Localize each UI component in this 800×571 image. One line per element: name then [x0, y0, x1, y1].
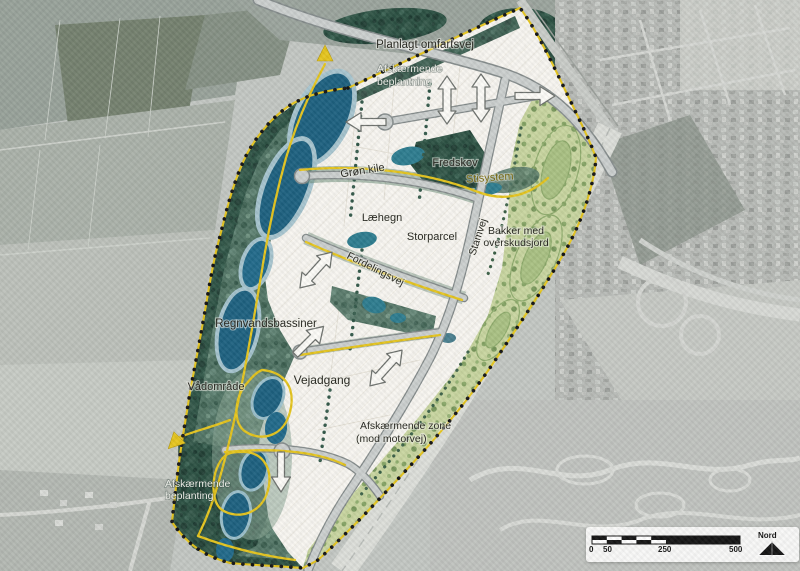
scale-tick-250: 250	[658, 545, 671, 555]
label-afskaermende-zone-line2: (mod motorvej)	[356, 433, 427, 445]
north-label: Nord	[758, 531, 777, 540]
site-plan-map: Planlagt omfartsvej Afskærmende beplantn…	[0, 0, 800, 571]
label-vaadomraade: Vådområde	[188, 381, 245, 393]
label-afskaermende-zone-line1: Afskærmende zone	[360, 420, 451, 432]
label-regnvandsbassiner: Regnvandsbassiner	[215, 318, 317, 330]
scalebar-panel: 0 50 250 500 Nord	[586, 527, 799, 562]
label-afskaermende-beplantning-line2: beplantning	[377, 76, 431, 88]
scale-tick-500: 500	[729, 545, 742, 555]
label-afskaermende-beplanting-line2: beplanting	[165, 490, 214, 502]
label-fredskov: Fredskov	[432, 157, 478, 169]
north-arrow-icon	[756, 540, 788, 557]
label-storparcel: Storparcel	[407, 231, 457, 243]
scale-tick-0: 0	[589, 545, 593, 555]
scalebar	[591, 535, 743, 545]
scale-tick-50: 50	[603, 545, 612, 555]
label-afskaermende-beplanting-line1: Afskærmende	[165, 478, 231, 490]
label-laehegn: Læhegn	[362, 212, 402, 224]
label-bakker-line2: overskudsjord	[483, 237, 549, 249]
label-afskaermende-beplantning-line1: Afskærmende	[377, 63, 443, 75]
label-planlagt-omfartsvej: Planlagt omfartsvej	[376, 39, 474, 51]
label-bakker-line1: Bakker med	[488, 225, 544, 237]
label-vejadgang: Vejadgang	[294, 373, 351, 387]
